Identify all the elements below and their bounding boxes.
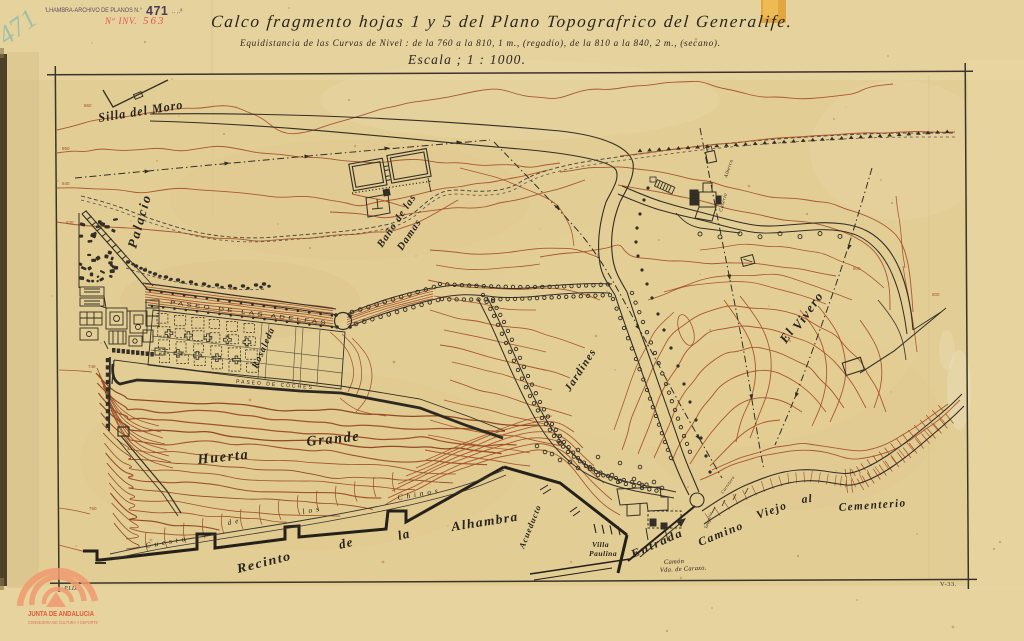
- svg-text:840: 840: [62, 181, 70, 186]
- svg-text:750: 750: [89, 506, 97, 511]
- svg-text:Villa: Villa: [592, 540, 609, 549]
- svg-text:CONSEJERIA DE CULTURA Y DEPORT: CONSEJERIA DE CULTURA Y DEPORTE: [28, 620, 98, 625]
- svg-text:'LHAMBRA-ARCHIVO DE PLANOS N.°: 'LHAMBRA-ARCHIVO DE PLANOS N.°: [45, 8, 143, 14]
- svg-text:.. ,.ᴵᴵ: .. ,.ᴵᴵ: [172, 8, 182, 15]
- svg-text:Equidistancia de las Curvas de: Equidistancia de las Curvas de Nivel : d…: [239, 38, 720, 48]
- svg-text:800: 800: [853, 266, 861, 271]
- svg-text:850: 850: [62, 146, 70, 151]
- svg-text:563: 563: [143, 15, 166, 27]
- svg-text:749: 749: [88, 364, 96, 369]
- svg-text:al: al: [801, 493, 814, 506]
- svg-text:860: 860: [84, 103, 92, 108]
- svg-text:830: 830: [66, 220, 74, 225]
- svg-text:Calco fragmento hojas 1 y 5 de: Calco fragmento hojas 1 y 5 del Plano To…: [210, 12, 792, 31]
- svg-text:JUNTA DE ANDALUCIA: JUNTA DE ANDALUCIA: [28, 609, 94, 618]
- svg-text:Escala ; 1 : 1000.: Escala ; 1 : 1000.: [407, 52, 525, 67]
- svg-text:V-33.: V-33.: [940, 581, 957, 588]
- svg-text:800: 800: [932, 292, 940, 297]
- svg-text:Paulina: Paulina: [589, 549, 617, 558]
- svg-text:Nº INV.: Nº INV.: [104, 16, 137, 26]
- svg-text:Camón: Camón: [664, 558, 685, 566]
